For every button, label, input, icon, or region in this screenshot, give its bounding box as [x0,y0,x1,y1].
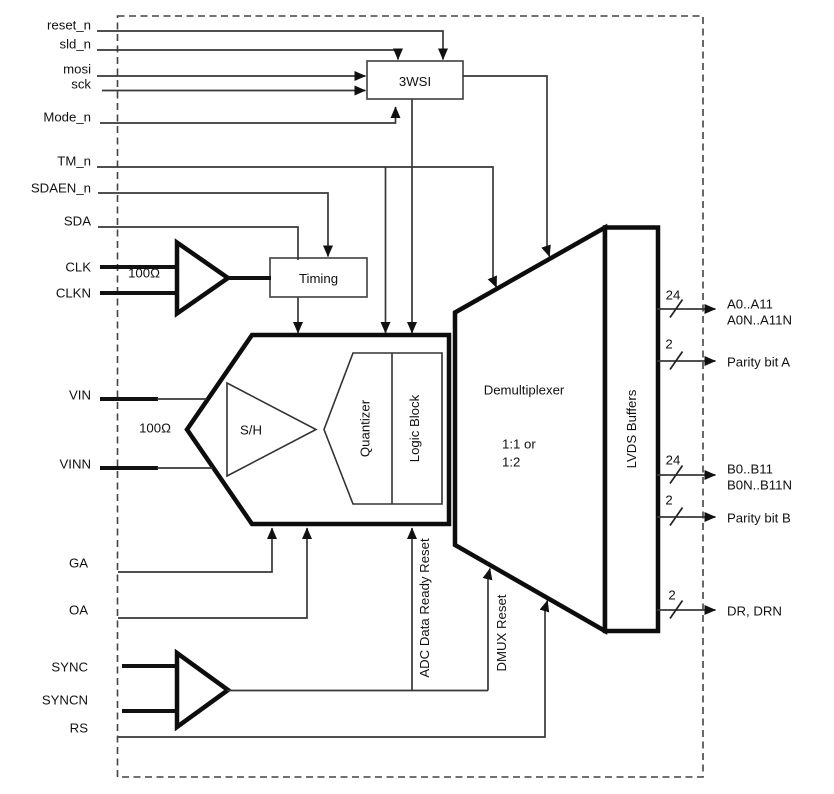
demux-ratio-line2: 1:2 [502,455,520,470]
pin-label-sck: sck [71,77,91,92]
pin-label-syncn: SYNCN [42,693,88,708]
pin-label-mosi: mosi [63,62,91,77]
pin-label-rs: RS [70,721,89,736]
wire-reset_n [97,31,443,60]
demux-ratio-line1: 1:1 or [502,437,536,452]
pin-label-clkn: CLKN [56,286,91,301]
dmux-reset-label: DMUX Reset [494,594,509,671]
bus-width-parity-b: 2 [665,493,672,508]
pin-label-vinn: VINN [59,457,91,472]
pin-label-ga: GA [69,556,88,571]
pin-label-reset_n: reset_n [47,18,91,33]
wire-oa [118,528,307,618]
quantizer-label: Quantizer [358,399,373,457]
out-label-bus-a-line1: A0..A11 [727,297,773,312]
wire-sld_n [97,50,398,60]
out-label-bus-b-line2: B0N..B11N [727,478,792,493]
pin-label-sda: SDA [64,214,91,229]
pin-label-mode_n: Mode_n [43,110,91,125]
pin-label-sld_n: sld_n [59,37,91,52]
pin-label-tm_n: TM_n [57,154,91,169]
out-label-parity-b: Parity bit B [727,511,791,526]
clk-termination-label: 100Ω [128,266,160,281]
bus-width-a: 24 [666,288,681,303]
bus-width-parity-a: 2 [665,337,672,352]
bus-width-b: 24 [666,453,681,468]
out-label-bus-b-line1: B0..B11 [727,462,773,477]
pin-label-sdaen_n: SDAEN_n [31,181,91,196]
pin-label-vin: VIN [69,388,91,403]
wire-mode_n [100,107,396,123]
wire-ga [118,528,272,572]
sync-buffer-symbol [177,653,228,727]
logic-block-label: Logic Block [407,394,422,462]
demultiplexer-label: Demultiplexer [484,383,565,398]
3wsi-label: 3WSI [399,74,431,89]
wire-dmux-reset [488,569,490,691]
out-label-dr-drn: DR, DRN [727,604,782,619]
wire-sdaen_n [98,193,328,257]
out-label-parity-a: Parity bit A [727,355,790,370]
bus-width-dr: 2 [668,588,675,603]
clock-buffer-symbol [177,243,228,314]
adc-functional-block-diagram: reset_n sld_n mosi sck Mode_n TM_n SDAEN… [0,0,834,794]
pin-label-clk: CLK [65,260,91,275]
diagram-canvas: reset_n sld_n mosi sck Mode_n TM_n SDAEN… [0,0,834,794]
out-label-bus-a-line2: A0N..A11N [727,313,792,328]
pin-label-oa: OA [69,603,88,618]
demultiplexer-block [455,228,605,632]
timing-label: Timing [299,271,338,286]
pin-label-sync: SYNC [51,660,88,675]
lvds-buffers-label: LVDS Buffers [624,389,639,468]
adc-data-ready-reset-label: ADC Data Ready Reset [417,538,432,678]
sample-hold-label: S/H [240,423,262,438]
vin-termination-label: 100Ω [139,421,171,436]
